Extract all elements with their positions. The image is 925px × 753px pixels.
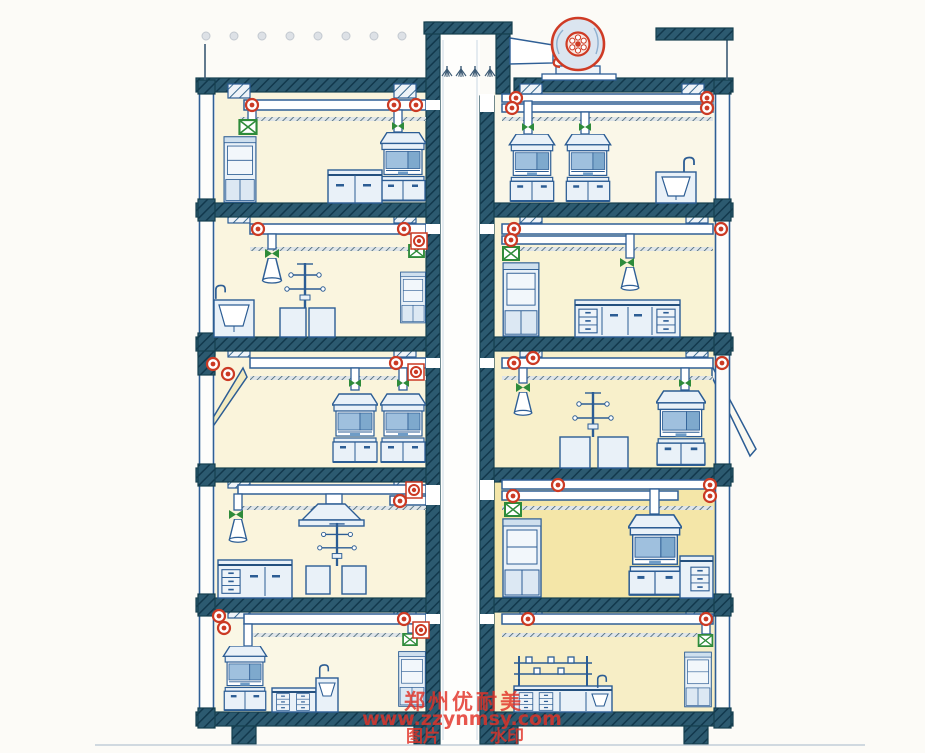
bench-module [598,437,628,468]
bench-module [280,308,306,337]
lab-exhaust-section-diagram: 郑州优耐美 www.zzynmsy.com 图片 水印 [0,0,925,753]
bench-module [309,308,335,337]
shaft-penthouse-cap [424,22,512,34]
red-damper [398,613,410,625]
fume-hood [509,134,554,201]
red-damper-boxed [406,482,422,498]
bench-module [560,437,590,468]
ducted-cabinet [685,652,712,707]
ducted-cabinet [503,263,539,336]
bench-with-drawers [575,300,680,337]
red-damper [522,613,534,625]
penthouse-right-wall [496,34,510,94]
bench-with-drawers [218,560,292,598]
fume-hood [380,133,426,201]
watermark-line3-right: 水印 [490,726,524,747]
red-damper [701,102,713,114]
lab-bench [328,170,382,203]
red-damper [218,622,230,634]
green-damper-box [699,635,713,646]
ducted-cabinet [224,137,256,202]
red-damper [388,99,400,111]
fan-base-plate [542,74,616,80]
green-damper-box [503,247,519,260]
bench-module [306,566,330,594]
red-damper [246,99,258,111]
ducted-cabinet [503,519,541,597]
fume-hood [628,515,682,595]
green-damper-box [239,120,256,134]
red-damper [704,490,716,502]
red-damper [390,357,402,369]
watermark-line3-left: 图片 [406,726,440,747]
right-parapet-cap [656,28,733,40]
red-damper [507,490,519,502]
green-damper-box [505,503,521,516]
red-damper-boxed [413,622,429,638]
red-damper [715,223,727,235]
red-damper [527,352,539,364]
red-damper [716,357,728,369]
red-damper [700,613,712,625]
red-damper [508,357,520,369]
shaft-right-wall [480,96,494,744]
red-damper [398,223,410,235]
left-outer-wall [198,44,215,728]
red-damper [505,234,517,246]
red-damper [506,102,518,114]
red-damper-boxed [411,233,427,249]
fume-hood [656,391,706,465]
diagram-canvas: 郑州优耐美 www.zzynmsy.com 图片 水印 [0,0,925,753]
bench-with-drawers [680,556,713,598]
watermark-line2: www.zzynmsy.com [362,708,562,730]
red-damper [394,495,406,507]
fume-hood [565,134,610,201]
bench-with-drawers [272,688,316,712]
fume-hood [380,394,426,462]
red-damper [222,368,234,380]
red-damper [252,223,264,235]
ducted-cabinet [401,272,426,323]
fan-impeller-hub [567,33,590,56]
red-damper-boxed [408,364,424,380]
fume-hood [332,394,378,462]
red-damper [552,479,564,491]
red-damper [410,99,422,111]
red-damper [207,358,219,370]
bench-module [342,566,366,594]
fume-hood [223,646,266,710]
red-damper [213,610,225,622]
